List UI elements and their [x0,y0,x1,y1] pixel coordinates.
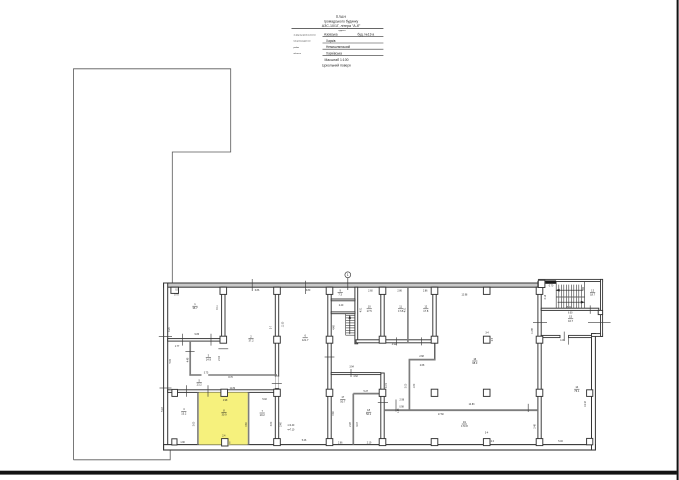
svg-text:98.3: 98.3 [472,361,478,365]
svg-text:Масштаб 1:100: Масштаб 1:100 [325,58,349,62]
svg-text:4.91: 4.91 [405,307,407,312]
svg-text:громадського будинку: громадського будинку [324,19,359,23]
svg-text:АЗС-10/1Г, літера "А-б": АЗС-10/1Г, літера "А-б" [322,24,361,28]
svg-text:17.8: 17.8 [423,309,429,313]
svg-text:4.48: 4.48 [188,357,190,362]
svg-text:5.60: 5.60 [170,358,172,363]
svg-text:ч=4.40: ч=4.40 [287,425,295,427]
svg-text:4.18: 4.18 [357,422,359,427]
svg-text:11.90: 11.90 [283,321,285,327]
svg-text:7.3: 7.3 [338,292,342,296]
svg-text:8.22: 8.22 [567,307,572,309]
svg-text:2.66: 2.66 [338,442,343,444]
svg-text:121.7: 121.7 [302,338,309,342]
svg-text:2.40: 2.40 [339,305,344,307]
svg-text:6.80: 6.80 [306,290,311,292]
svg-text:4.48: 4.48 [333,325,335,330]
svg-text:район: район [294,46,300,49]
svg-text:4.91: 4.91 [360,307,362,312]
svg-text:2.14: 2.14 [545,294,547,299]
svg-text:9.86: 9.86 [195,334,200,336]
svg-text:область: область [294,53,301,55]
svg-text:2.68: 2.68 [419,356,424,358]
svg-text:5.27: 5.27 [364,391,369,393]
svg-text:6.20: 6.20 [169,327,171,332]
svg-text:Немишлянський: Немишлянський [326,45,350,49]
svg-text:Харківська: Харківська [326,51,342,55]
svg-text:2.60: 2.60 [368,290,373,292]
svg-text:ч=7.10: ч=7.10 [287,429,295,431]
svg-text:6.00: 6.00 [568,313,573,315]
svg-text:0.70: 0.70 [174,294,179,296]
svg-text:52.1: 52.1 [366,412,372,416]
svg-text:3.60: 3.60 [271,421,273,426]
svg-text:0.70: 0.70 [549,286,554,288]
svg-text:1: 1 [347,273,349,277]
svg-text:Азовська: Азовська [324,33,338,37]
svg-text:2.86: 2.86 [423,290,428,292]
svg-text:23.2: 23.2 [197,382,203,386]
svg-text:11.82: 11.82 [230,388,236,390]
svg-text:буд. №13-а: буд. №13-а [358,33,375,37]
svg-text:50.7: 50.7 [340,399,346,403]
svg-text:18.7: 18.7 [590,292,596,296]
svg-text:17.5: 17.5 [367,309,373,313]
svg-text:10.2: 10.2 [260,413,266,417]
svg-text:17.8: 17.8 [398,309,404,313]
svg-text:місцезнаходження: місцезнаходження [294,40,311,43]
svg-text:30.9: 30.9 [221,413,227,417]
svg-text:3.94: 3.94 [349,367,354,369]
svg-text:6.11: 6.11 [217,305,219,310]
svg-text:2.19: 2.19 [367,443,372,445]
svg-text:4.62: 4.62 [353,376,358,378]
svg-text:15.2: 15.2 [181,412,187,416]
svg-text:4.46: 4.46 [560,340,565,342]
svg-text:2.86: 2.86 [397,290,402,292]
svg-text:14.83: 14.83 [469,404,475,406]
svg-text:1.77: 1.77 [175,346,180,348]
svg-text:Цокольний поверх: Цокольний поверх [322,63,351,67]
svg-text:4.74: 4.74 [386,383,388,388]
svg-text:2.68: 2.68 [420,365,425,367]
svg-text:5.46: 5.46 [558,441,563,443]
svg-text:6.86: 6.86 [255,290,260,292]
svg-text:Харків: Харків [326,39,336,43]
svg-text:36.7: 36.7 [192,306,198,310]
svg-text:3.60: 3.60 [193,421,195,426]
svg-text:адреса: адреса [338,30,346,32]
svg-text:5.93: 5.93 [162,407,164,412]
svg-text:14.9: 14.9 [206,358,212,362]
svg-text:2.40: 2.40 [281,422,283,427]
svg-text:1.98: 1.98 [223,400,228,402]
svg-text:1.60: 1.60 [414,383,416,388]
svg-text:3.75: 3.75 [204,372,209,374]
svg-text:3.40: 3.40 [333,411,335,416]
svg-text:2.98: 2.98 [400,400,405,402]
svg-text:17.60: 17.60 [438,414,444,416]
svg-text:16.7: 16.7 [568,319,574,323]
svg-text:5.46: 5.46 [302,440,307,442]
svg-text:8.70: 8.70 [228,377,233,379]
svg-text:2.48: 2.48 [534,423,536,428]
svg-text:0.98: 0.98 [399,407,404,409]
svg-text:12.98: 12.98 [462,295,468,297]
svg-text:173.8: 173.8 [461,424,468,428]
svg-text:76.1: 76.1 [574,389,580,393]
svg-text:37.2: 37.2 [248,339,254,343]
svg-text:2.98: 2.98 [350,422,352,427]
svg-text:5.02: 5.02 [262,399,267,401]
svg-text:4.92: 4.92 [392,344,397,346]
svg-text:14.16: 14.16 [585,400,587,406]
svg-text:1.90: 1.90 [180,442,185,444]
svg-text:2.04: 2.04 [219,356,221,361]
svg-text:11.88: 11.88 [532,327,534,333]
svg-text:3.60: 3.60 [246,422,248,427]
svg-text:за функц.призначенням: за функц.призначенням [294,33,317,36]
svg-text:3.00: 3.00 [405,383,407,388]
svg-text:1.46: 1.46 [398,408,400,413]
